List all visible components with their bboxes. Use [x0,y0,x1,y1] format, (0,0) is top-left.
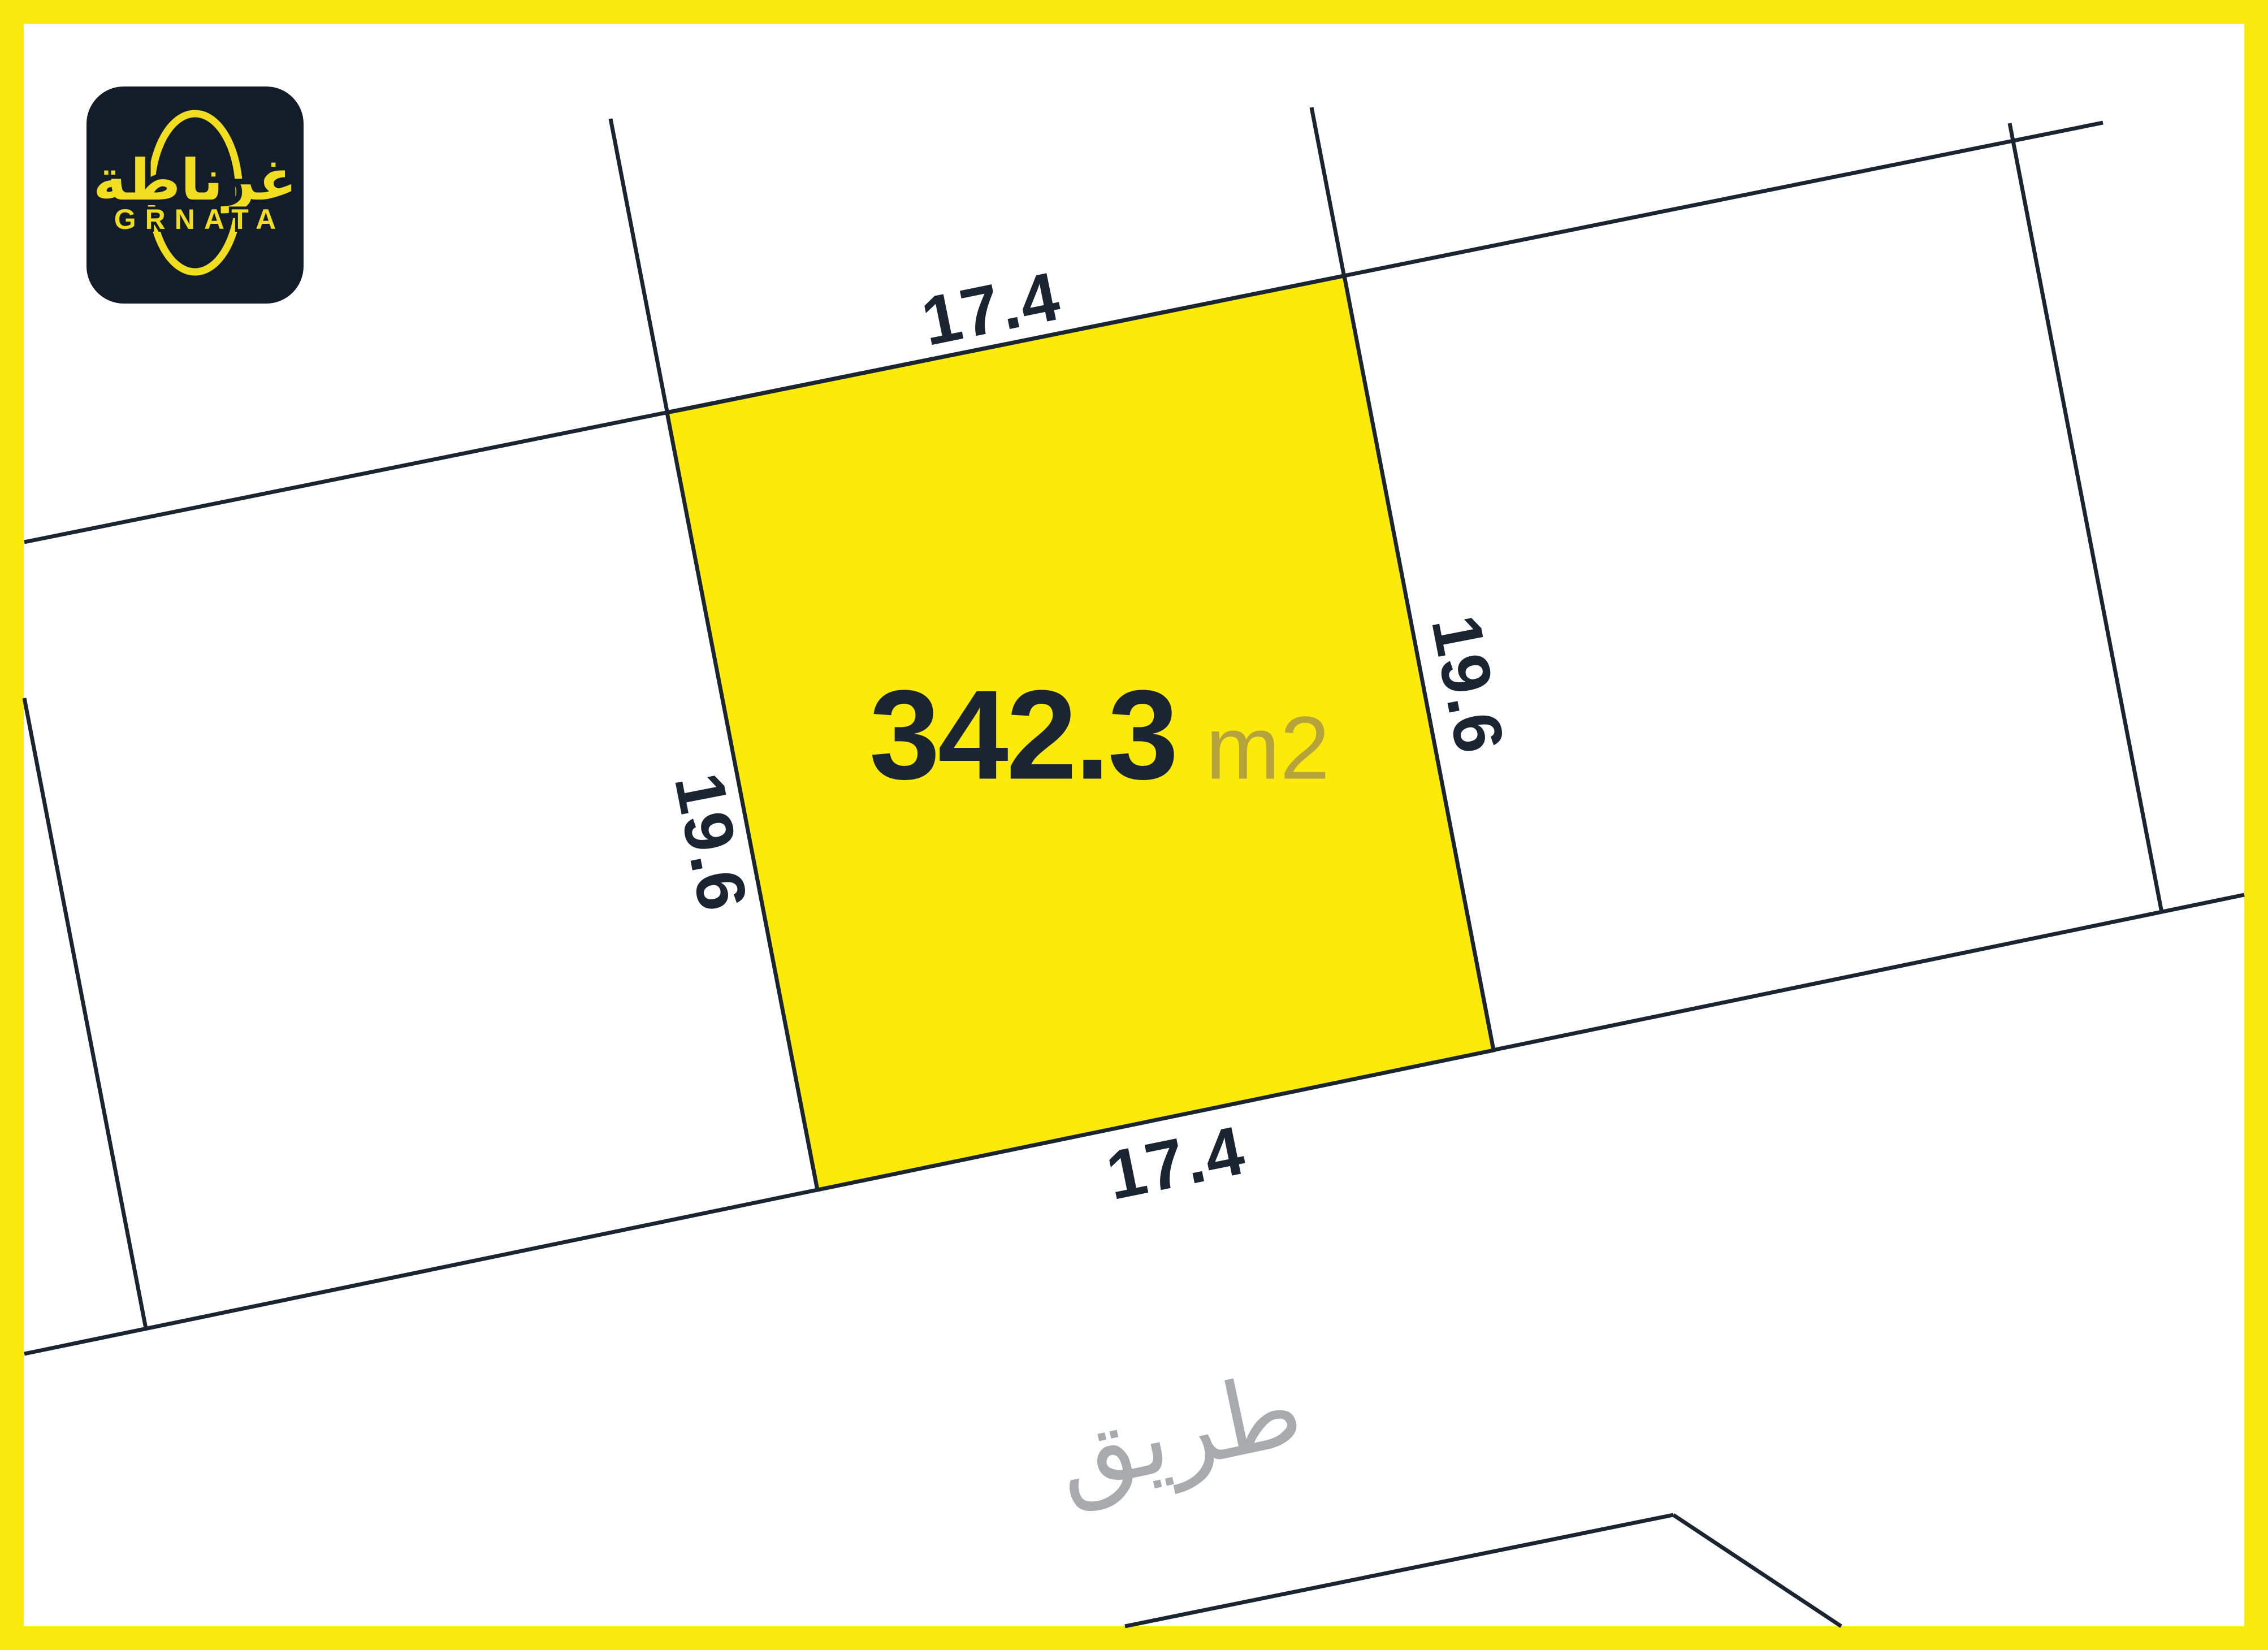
logo-latin-text: GRNATA [114,203,285,235]
brand-logo: غرناطة GRNATA [86,86,304,304]
right-plot-divider-line [2010,123,2162,912]
cross-road-plot-left-edge [1125,1515,1673,1626]
plot-area-unit: m2 [1206,704,1330,793]
plot-area-label: 342.3 m2 [869,672,1330,799]
plot-area-value: 342.3 [869,672,1176,799]
cross-road-plot-right-edge [1673,1515,1841,1626]
left-plot-divider-line [24,698,146,1328]
